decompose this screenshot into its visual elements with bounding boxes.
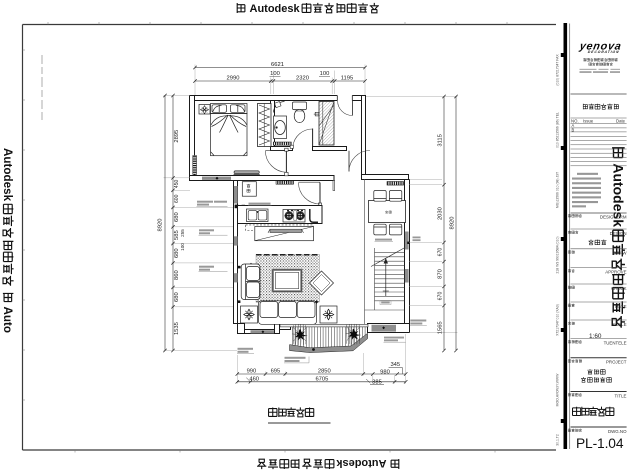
svg-text:PROJECT: PROJECT bbox=[606, 360, 627, 365]
svg-text:460: 460 bbox=[249, 376, 259, 382]
svg-text:860: 860 bbox=[174, 270, 180, 280]
svg-text:600: 600 bbox=[174, 194, 180, 203]
svg-text:DESIGN: DESIGN bbox=[610, 231, 627, 236]
svg-text:450: 450 bbox=[174, 180, 180, 189]
svg-text:Auto: Auto bbox=[1, 306, 14, 333]
svg-text:680: 680 bbox=[174, 292, 180, 302]
svg-text:990: 990 bbox=[247, 369, 257, 375]
svg-text:CHECK: CHECK bbox=[611, 286, 626, 291]
svg-text:B: B bbox=[572, 127, 575, 132]
svg-text:680: 680 bbox=[174, 212, 180, 222]
svg-text:TUENTELE: TUENTELE bbox=[604, 340, 627, 345]
svg-text:670: 670 bbox=[438, 292, 444, 301]
svg-text:PL-1.04: PL-1.04 bbox=[576, 436, 624, 451]
svg-text:Autodesk: Autodesk bbox=[250, 3, 301, 15]
svg-text:2320: 2320 bbox=[296, 76, 309, 82]
svg-text:Autodesk: Autodesk bbox=[336, 457, 387, 469]
svg-text:X7217347 010 (XA3): X7217347 010 (XA3) bbox=[556, 304, 560, 336]
svg-text:(010) 87217347 FAX: (010) 87217347 FAX bbox=[556, 54, 560, 86]
svg-text:870: 870 bbox=[438, 269, 444, 279]
svg-text:218 W3 990195B4 (010): 218 W3 990195B4 (010) bbox=[556, 237, 560, 274]
svg-text:980: 980 bbox=[380, 369, 390, 375]
svg-text:DRAW: DRAW bbox=[613, 251, 627, 256]
svg-text:2990: 2990 bbox=[227, 76, 240, 82]
svg-text:010 85213566 (86) TEL: 010 85213566 (86) TEL bbox=[556, 112, 560, 148]
svg-text:3115: 3115 bbox=[438, 134, 444, 146]
svg-text:DATE: DATE bbox=[615, 304, 626, 309]
svg-text:670: 670 bbox=[438, 248, 444, 257]
svg-text:MG)13566 010 (98) J3T: MG)13566 010 (98) J3T bbox=[556, 172, 560, 208]
svg-text:255: 255 bbox=[180, 229, 185, 237]
svg-text:2895: 2895 bbox=[174, 130, 180, 143]
svg-text:8920: 8920 bbox=[158, 219, 164, 232]
svg-text:2850: 2850 bbox=[318, 369, 331, 375]
svg-text:Autodesk: Autodesk bbox=[1, 148, 14, 202]
svg-text:Issue: Issue bbox=[583, 119, 594, 124]
svg-text:2030: 2030 bbox=[438, 207, 444, 220]
svg-text:6621: 6621 bbox=[271, 62, 284, 68]
svg-text:1195: 1195 bbox=[341, 76, 353, 82]
svg-text:MOO.AVON3Y.WWW: MOO.AVON3Y.WWW bbox=[556, 373, 560, 406]
svg-text:1535: 1535 bbox=[174, 322, 180, 335]
svg-text:8920: 8920 bbox=[450, 217, 456, 230]
svg-text:DWG.NO: DWG.NO bbox=[608, 429, 627, 434]
svg-text:695: 695 bbox=[271, 369, 281, 375]
svg-text:SCALE: SCALE bbox=[612, 322, 626, 327]
svg-text:6705: 6705 bbox=[315, 376, 328, 382]
svg-text:TITLE: TITLE bbox=[615, 393, 627, 398]
svg-text:DECORATION: DECORATION bbox=[588, 50, 620, 54]
svg-text:APPROVE: APPROVE bbox=[605, 269, 626, 274]
svg-text:30.1.T2: 30.1.T2 bbox=[556, 434, 560, 446]
svg-text:DESIGNERM: DESIGNERM bbox=[600, 214, 627, 219]
svg-text:1565: 1565 bbox=[438, 321, 444, 334]
svg-text:Date: Date bbox=[616, 119, 626, 124]
svg-text:100: 100 bbox=[180, 243, 185, 251]
